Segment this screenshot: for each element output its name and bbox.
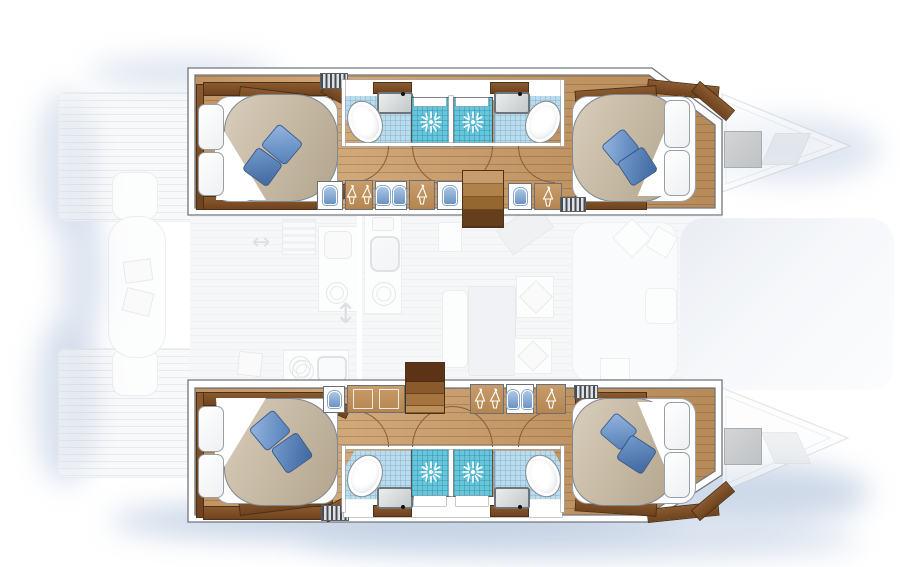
shower-stall [453,447,493,497]
locker-hatch-icon [514,188,527,205]
headboard-cushion [198,104,224,150]
locker-unit [437,181,463,210]
vent-grille [574,385,598,399]
stair-tread [406,394,444,406]
hanger-icon [542,186,554,208]
shower-stall [411,447,451,497]
hanger-icon [361,184,373,206]
stern-window [724,131,762,168]
stern-window [724,428,762,465]
bathroom-wall [561,446,564,512]
locker-hatch-icon [522,390,534,409]
companionway-stairs [405,362,445,414]
headboard-cushion [198,454,224,498]
locker-hatch-icon [393,186,407,205]
bathroom-wall [342,80,345,146]
cabinet-door [379,389,399,409]
shower-seat [414,98,446,106]
headboard-cushion [198,152,224,196]
hanger-icon [346,184,358,206]
stair-landing [463,210,503,227]
hanger-icon [474,388,486,410]
headboard-cushion [664,150,690,196]
shower-spray-icon [461,460,485,484]
stair-tread [406,382,444,394]
shower-seat [456,98,488,106]
hanger-icon [489,388,501,410]
storage-bins [375,181,407,210]
headboard-cushion [664,452,690,498]
hanger-icon [416,184,428,206]
shower-divider-wall [449,446,453,496]
hanging-wardrobe [470,384,504,414]
locker-hatch-icon [507,390,519,409]
vent-grille [560,197,586,212]
locker-hatch-icon [323,186,337,205]
hanging-wardrobe [345,180,373,210]
shower-drawer [414,496,446,506]
shower-spray-icon [419,110,443,134]
storage-bins [508,183,532,210]
headboard-cushion [198,406,224,452]
stair-tread [406,406,444,413]
headboard-cushion [664,402,690,450]
cabinet-door [353,389,373,409]
bathroom-wall [342,446,345,512]
stair-tread [463,171,503,184]
shower-spray-icon [419,460,443,484]
hanging-wardrobe [536,384,566,414]
bathroom-wall [561,80,564,146]
locker-hatch-icon [376,186,390,205]
stair-tread [463,197,503,210]
hanging-wardrobe [534,183,562,210]
bathroom-sink [377,487,413,509]
hanger-icon [545,388,557,410]
stair-tread [463,184,503,197]
bathroom-sink [377,92,413,114]
locker-hatch-icon [328,391,341,408]
locker-unit [317,181,343,210]
shower-drawer [456,496,488,506]
locker-unit [323,386,345,413]
catamaran-floorplan: ↕ ↔ [0,0,900,567]
locker-hatch-icon [443,186,457,205]
headboard-cushion [664,100,690,148]
storage-bins [506,384,534,414]
shower-spray-icon [461,110,485,134]
hanging-wardrobe [409,180,435,210]
stair-landing [406,363,444,382]
bathroom-sink [494,487,530,509]
low-cabinet [347,385,405,413]
companionway-stairs [462,170,504,228]
shower-divider-wall [449,96,453,146]
bathroom-sink [494,92,530,114]
